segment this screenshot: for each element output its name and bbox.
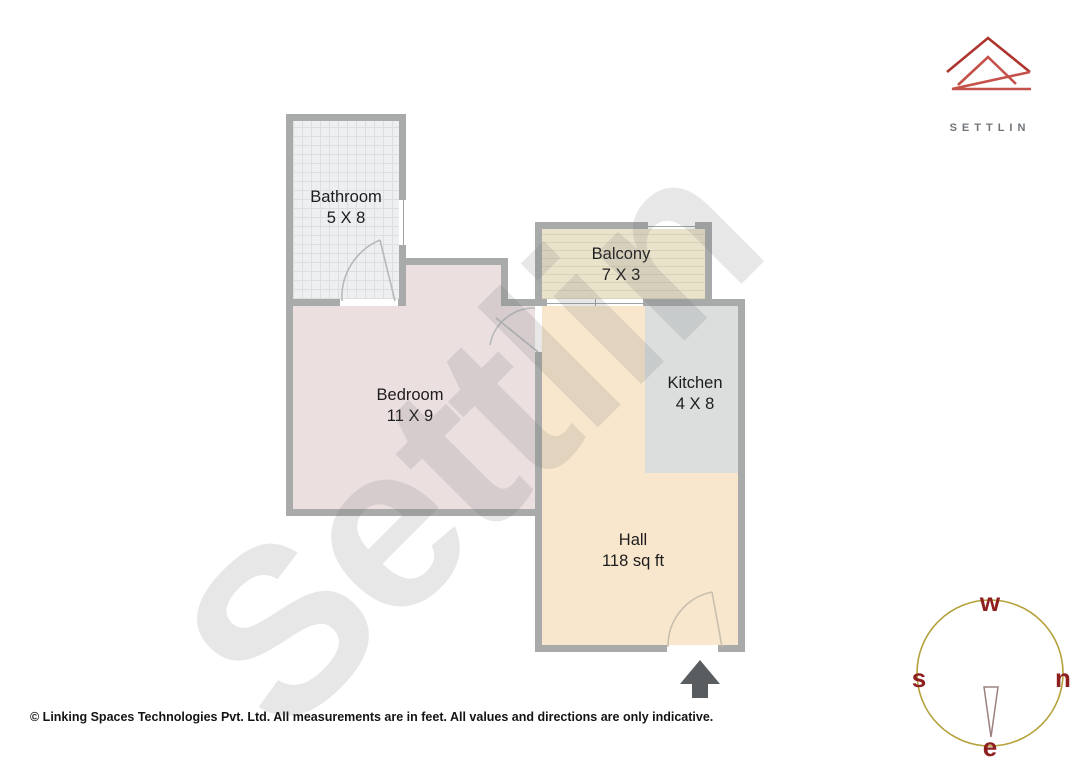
window [648,222,695,229]
room-dims: 7 X 3 [592,265,651,286]
wall [399,245,406,299]
compass-east: e [983,734,997,760]
room-dims: 4 X 8 [667,394,722,415]
room-dims: 118 sq ft [602,551,664,572]
wall [286,299,340,306]
sliding-door [547,299,643,306]
window-pane-line [403,200,404,245]
floor-plan-canvas: Bathroom 5 X 8 Balcony 7 X 3 Bedroom 11 … [0,0,1080,764]
label-bathroom: Bathroom 5 X 8 [310,187,382,229]
compass-icon: w s n e [905,588,1077,760]
label-hall: Hall 118 sq ft [602,530,664,572]
wall [535,352,542,516]
wall [542,222,648,229]
room-dims: 5 X 8 [310,208,382,229]
compass-north: n [1055,665,1071,691]
sliding-door-divider [595,299,596,306]
wall [535,645,667,652]
room-dims: 11 X 9 [377,406,444,427]
wall [535,222,542,306]
wall [398,299,406,306]
compass-needle [984,687,998,737]
window [399,200,406,245]
wall [286,121,293,306]
label-balcony: Balcony 7 X 3 [592,244,651,286]
wall [695,222,712,229]
wall [535,516,542,652]
room-bedroom-upper [406,265,501,306]
wall [286,114,406,121]
copyright-disclaimer: © Linking Spaces Technologies Pvt. Ltd. … [30,710,713,724]
window-pane-line [648,226,695,227]
settlin-logo-wordmark: SETTLIN [950,122,1031,134]
room-name: Bedroom [377,385,444,406]
wall [286,509,542,516]
wall [535,299,547,306]
entrance-arrow-icon [680,660,720,698]
settlin-logo: SETTLIN [930,26,1050,116]
wall [286,306,293,516]
room-name: Kitchen [667,373,722,394]
wall [399,258,508,265]
label-bedroom: Bedroom 11 X 9 [377,385,444,427]
wall [705,229,712,299]
room-name: Balcony [592,244,651,265]
room-name: Hall [602,530,664,551]
room-name: Bathroom [310,187,382,208]
wall [643,299,745,306]
compass-west: w [980,589,1000,615]
label-kitchen: Kitchen 4 X 8 [667,373,722,415]
settlin-logo-icon [930,26,1050,116]
wall [399,121,406,200]
wall [738,299,745,652]
compass-south: s [912,665,926,691]
